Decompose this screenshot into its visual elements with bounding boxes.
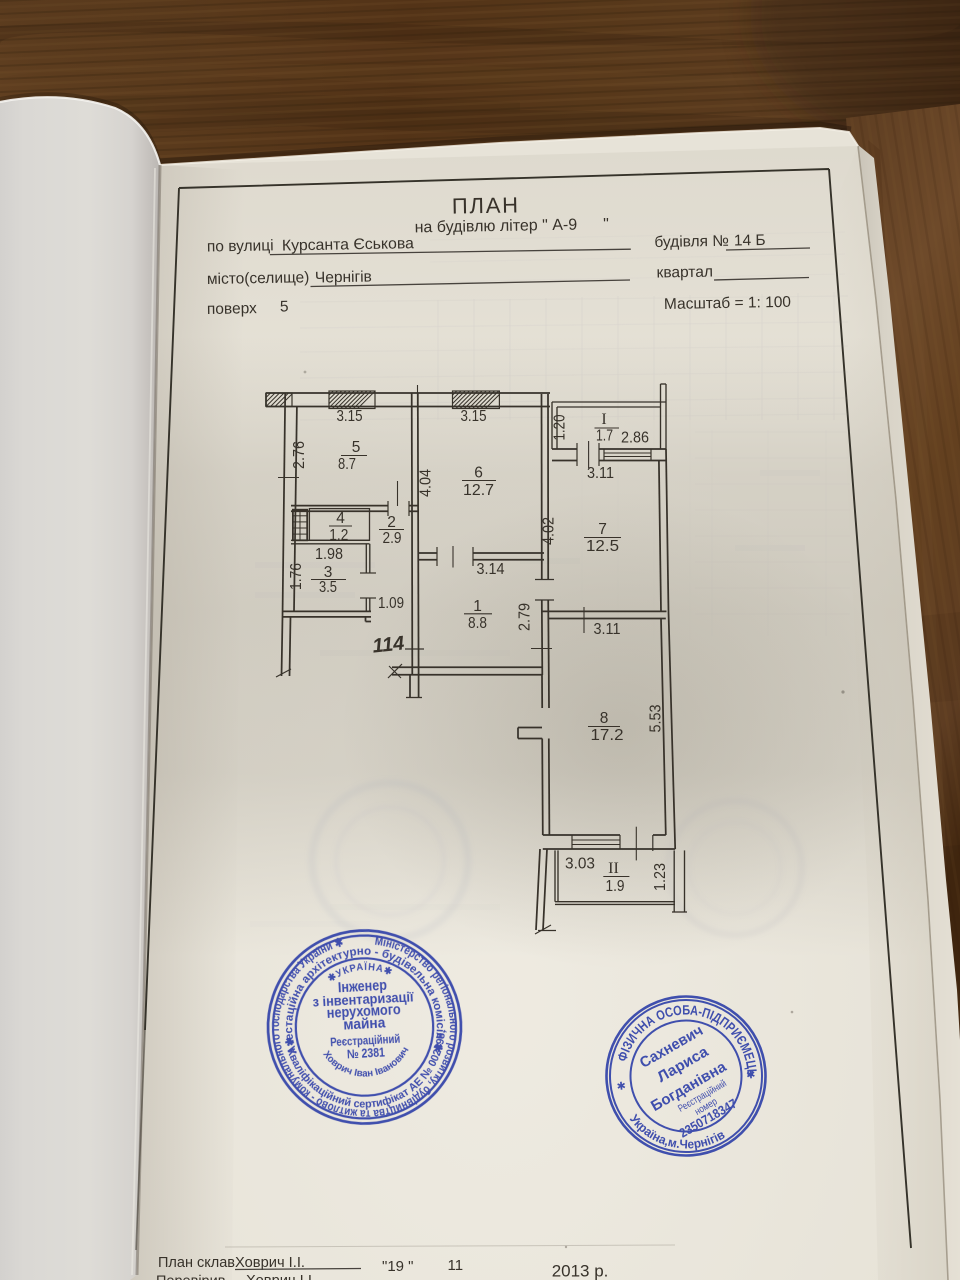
svg-text:1.20: 1.20 [552, 414, 569, 440]
svg-text:1.09: 1.09 [378, 595, 404, 612]
svg-text:8.7: 8.7 [338, 456, 356, 473]
svg-text:I: I [601, 411, 606, 428]
svg-text:14 Б: 14 Б [734, 232, 766, 250]
svg-text:по вулиці: по вулиці [207, 237, 274, 255]
svg-text:8: 8 [600, 710, 609, 727]
svg-text:Масштаб = 1: 100: Масштаб = 1: 100 [664, 294, 792, 313]
svg-text:8.8: 8.8 [468, 615, 487, 632]
svg-text:1.9: 1.9 [606, 878, 625, 895]
svg-text:1.2: 1.2 [329, 527, 348, 544]
svg-text:5: 5 [352, 439, 361, 456]
svg-text:"19 ": "19 " [382, 1258, 414, 1275]
svg-text:11: 11 [448, 1257, 464, 1274]
svg-text:17.2: 17.2 [591, 727, 624, 744]
svg-text:План склав: План склав [158, 1255, 235, 1271]
svg-text:квартал: квартал [656, 264, 713, 282]
svg-text:1.23: 1.23 [652, 863, 669, 891]
svg-text:6: 6 [474, 465, 483, 482]
svg-text:12.7: 12.7 [463, 482, 494, 499]
svg-text:Чернігів: Чернігів [315, 269, 372, 287]
svg-text:3.03: 3.03 [565, 856, 595, 873]
svg-text:поверх: поверх [207, 300, 257, 318]
svg-text:3.14: 3.14 [477, 561, 505, 578]
svg-text:майна: майна [343, 1015, 387, 1033]
svg-text:✱: ✱ [616, 1080, 626, 1093]
svg-text:місто(селище): місто(селище) [207, 269, 310, 288]
svg-text:3.11: 3.11 [587, 465, 614, 482]
svg-text:4: 4 [336, 510, 345, 527]
svg-text:1: 1 [473, 598, 482, 615]
svg-text:3.15: 3.15 [337, 408, 363, 425]
svg-text:ПЛАН: ПЛАН [452, 192, 520, 218]
svg-text:1.98: 1.98 [315, 546, 343, 563]
svg-text:2.9: 2.9 [383, 530, 402, 547]
svg-text:3.11: 3.11 [594, 621, 621, 638]
svg-text:4.04: 4.04 [418, 469, 435, 497]
svg-text:2.86: 2.86 [621, 430, 649, 447]
svg-text:3.5: 3.5 [319, 579, 337, 596]
svg-text:5.53: 5.53 [648, 705, 665, 733]
svg-text:Курсанта Єськова: Курсанта Єськова [282, 235, 415, 254]
svg-text:✱: ✱ [746, 1069, 756, 1082]
svg-text:№ 2381: № 2381 [347, 1045, 386, 1061]
svg-text:Перевірив: Перевірив [156, 1274, 226, 1280]
svg-text:будівля №: будівля № [654, 233, 729, 251]
svg-text:12.5: 12.5 [586, 538, 619, 555]
svg-text:2013 р.: 2013 р. [552, 1262, 609, 1280]
svg-text:1.7: 1.7 [596, 428, 613, 445]
svg-text:5: 5 [280, 298, 289, 315]
svg-text:114: 114 [371, 632, 405, 657]
svg-text:Ховрич І.І.: Ховрич І.І. [246, 1273, 316, 1280]
svg-text:на будівлю літер " А-9: на будівлю літер " А-9 [414, 217, 577, 237]
svg-text:2.79: 2.79 [517, 603, 534, 631]
svg-text:": " [603, 216, 609, 233]
svg-text:1.76: 1.76 [288, 563, 305, 590]
svg-text:7: 7 [598, 521, 607, 538]
svg-text:II: II [608, 860, 619, 877]
svg-text:4.02: 4.02 [541, 517, 558, 545]
svg-text:2: 2 [387, 514, 396, 531]
svg-text:2.76: 2.76 [291, 441, 308, 469]
svg-text:3.15: 3.15 [461, 408, 487, 425]
